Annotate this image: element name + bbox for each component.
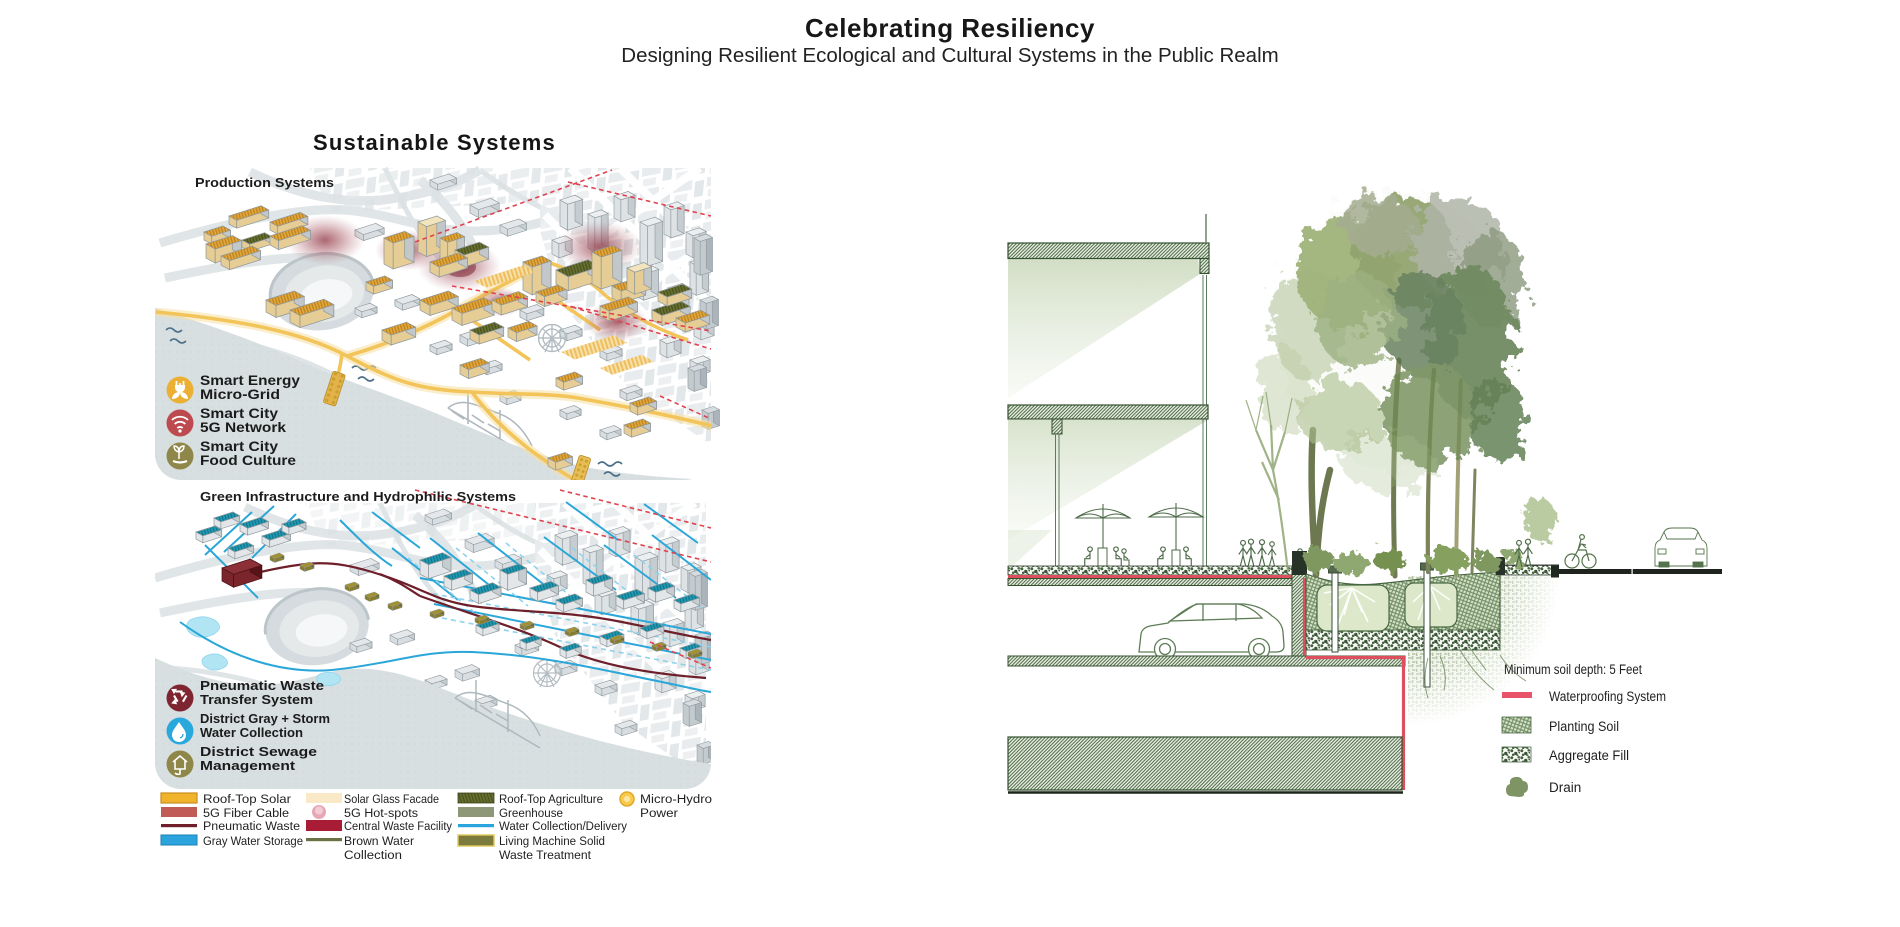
svg-text:Production Systems: Production Systems xyxy=(195,175,334,190)
svg-text:Sustainable Systems: Sustainable Systems xyxy=(313,130,556,155)
svg-text:District Gray + Storm: District Gray + Storm xyxy=(200,711,330,726)
svg-text:Living Machine Solid: Living Machine Solid xyxy=(499,834,605,848)
svg-text:Pneumatic Waste: Pneumatic Waste xyxy=(203,819,300,833)
svg-text:District Sewage: District Sewage xyxy=(200,744,317,759)
svg-text:Micro-Grid: Micro-Grid xyxy=(200,387,280,402)
svg-text:Water Collection: Water Collection xyxy=(200,725,303,740)
svg-text:5G Hot-spots: 5G Hot-spots xyxy=(344,806,418,820)
svg-text:Planting Soil: Planting Soil xyxy=(1549,719,1619,734)
svg-text:Power: Power xyxy=(640,806,678,820)
svg-text:Food Culture: Food Culture xyxy=(200,453,297,468)
svg-text:Greenhouse: Greenhouse xyxy=(499,806,563,820)
svg-text:Smart City: Smart City xyxy=(200,406,279,421)
svg-text:Aggregate Fill: Aggregate Fill xyxy=(1549,748,1629,763)
svg-text:5G Network: 5G Network xyxy=(200,420,287,435)
svg-text:Central Waste Facility: Central Waste Facility xyxy=(344,819,453,833)
svg-text:Smart Energy: Smart Energy xyxy=(200,373,301,388)
svg-text:Brown Water: Brown Water xyxy=(344,834,414,848)
svg-text:Celebrating Resiliency: Celebrating Resiliency xyxy=(805,13,1095,43)
svg-text:5G Fiber Cable: 5G Fiber Cable xyxy=(203,806,289,820)
svg-text:Smart City: Smart City xyxy=(200,439,279,454)
svg-text:Roof-Top Agriculture: Roof-Top Agriculture xyxy=(499,792,603,806)
svg-text:Waterproofing System: Waterproofing System xyxy=(1549,689,1666,704)
svg-text:Green Infrastructure and Hydro: Green Infrastructure and Hydrophilic Sys… xyxy=(200,490,516,504)
svg-text:Pneumatic Waste: Pneumatic Waste xyxy=(200,678,324,693)
svg-text:Management: Management xyxy=(200,758,296,773)
svg-text:Transfer System: Transfer System xyxy=(200,692,313,707)
svg-text:Designing Resilient Ecological: Designing Resilient Ecological and Cultu… xyxy=(621,44,1278,67)
svg-text:Minimum soil depth: 5 Feet: Minimum soil depth: 5 Feet xyxy=(1504,662,1642,677)
svg-text:Micro-Hydro: Micro-Hydro xyxy=(640,792,712,806)
svg-text:Drain: Drain xyxy=(1549,780,1581,795)
svg-text:Solar Glass Facade: Solar Glass Facade xyxy=(344,792,439,806)
svg-text:Water Collection/Delivery: Water Collection/Delivery xyxy=(499,819,628,833)
svg-text:Roof-Top Solar: Roof-Top Solar xyxy=(203,792,291,806)
svg-text:Collection: Collection xyxy=(344,848,402,862)
svg-text:Waste Treatment: Waste Treatment xyxy=(499,848,592,862)
svg-text:Gray Water Storage: Gray Water Storage xyxy=(203,834,303,848)
